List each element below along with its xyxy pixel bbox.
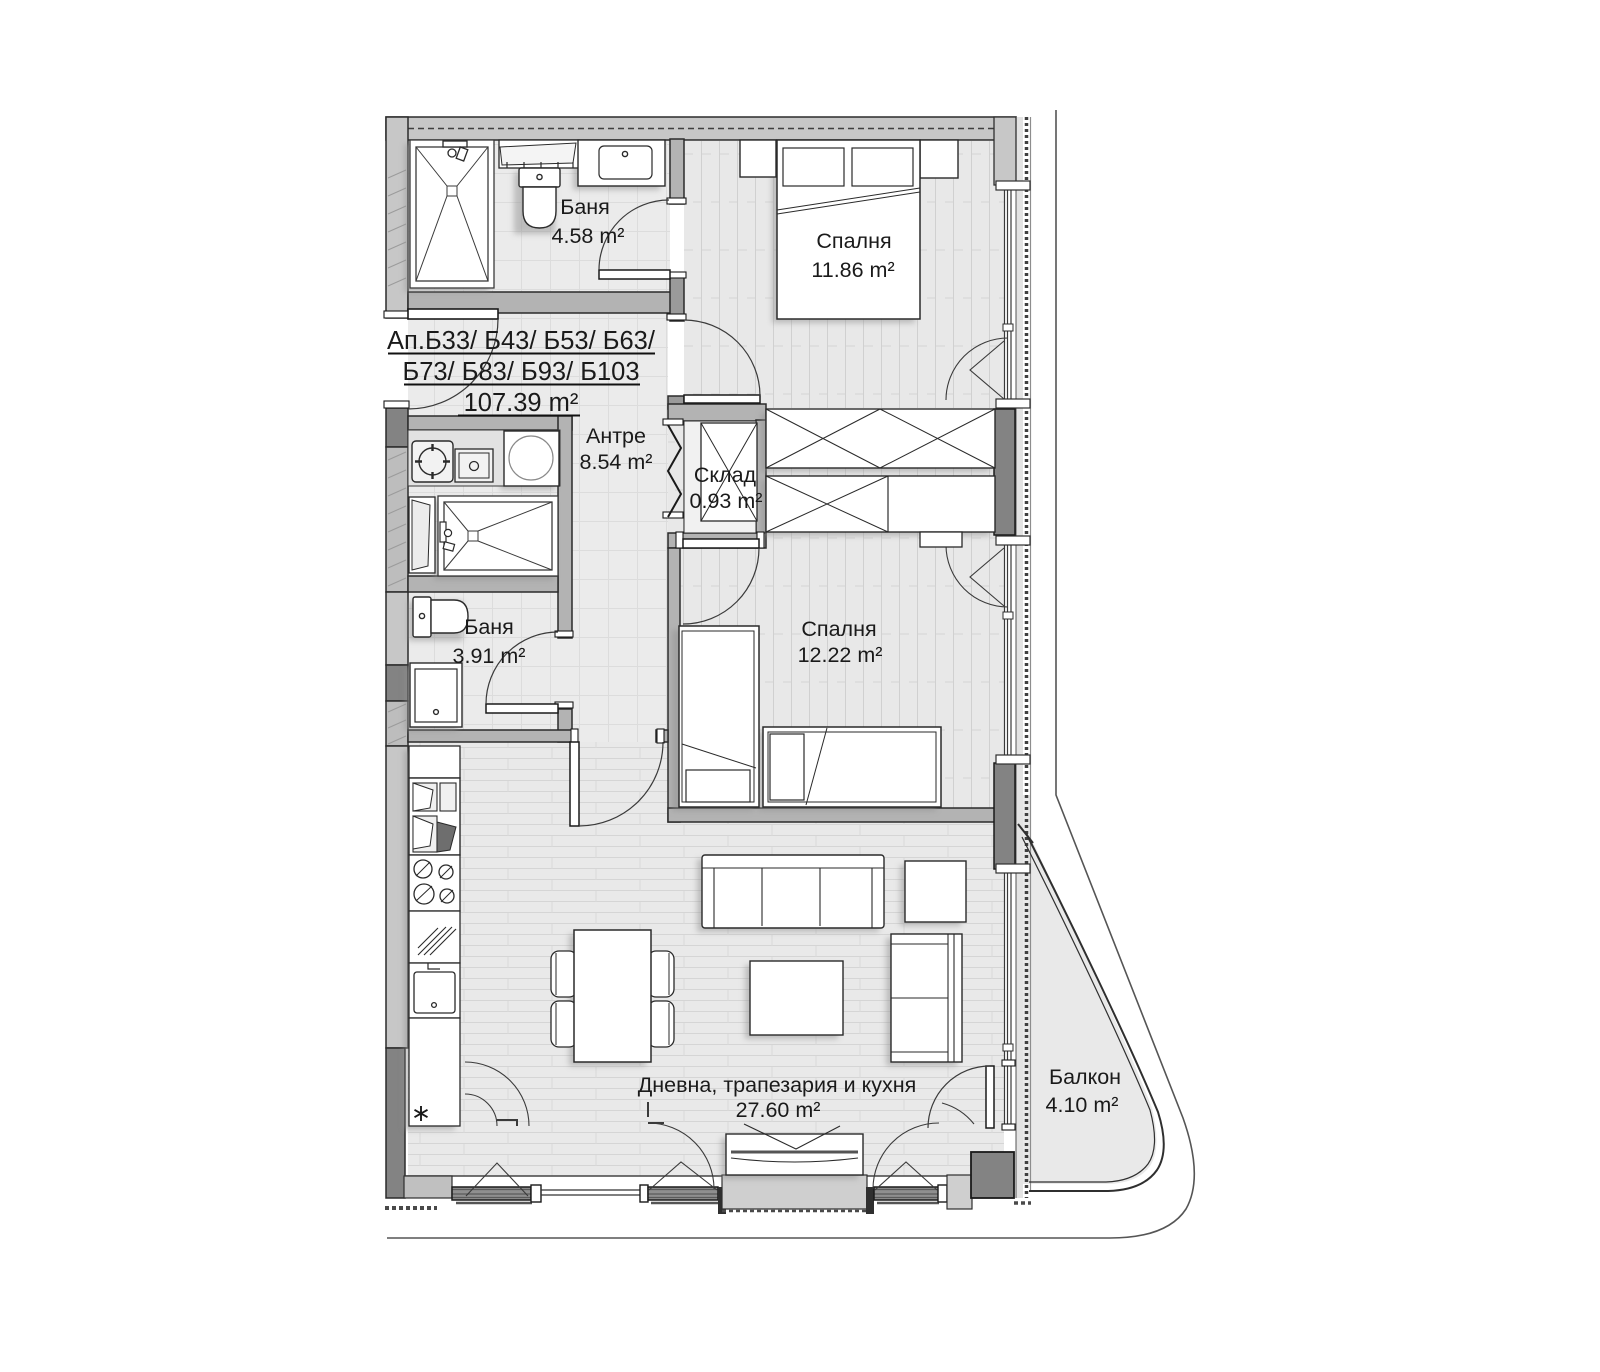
svg-text:4.58 m²: 4.58 m²	[552, 224, 625, 248]
svg-text:Балкон: Балкон	[1049, 1065, 1121, 1089]
svg-text:Спалня: Спалня	[816, 229, 891, 253]
svg-text:Баня: Баня	[464, 615, 514, 639]
svg-text:11.86 m²: 11.86 m²	[811, 258, 894, 282]
svg-text:Спалня: Спалня	[801, 617, 876, 641]
svg-text:Антре: Антре	[586, 424, 646, 448]
svg-text:0.93 m²: 0.93 m²	[690, 489, 763, 513]
svg-text:Б73/ Б83/ Б93/ Б103: Б73/ Б83/ Б93/ Б103	[402, 358, 639, 386]
svg-text:Склад: Склад	[694, 463, 757, 487]
svg-text:107.39 m²: 107.39 m²	[464, 389, 579, 417]
svg-text:12.22 m²: 12.22 m²	[798, 643, 883, 667]
svg-text:Дневна, трапезария и кухня: Дневна, трапезария и кухня	[638, 1073, 917, 1097]
svg-text:3.91 m²: 3.91 m²	[453, 644, 526, 668]
svg-text:27.60 m²: 27.60 m²	[736, 1098, 821, 1122]
svg-text:Ап.Б33/ Б43/ Б53/ Б63/: Ап.Б33/ Б43/ Б53/ Б63/	[387, 327, 656, 355]
svg-text:8.54 m²: 8.54 m²	[580, 450, 653, 474]
svg-text:4.10 m²: 4.10 m²	[1046, 1093, 1119, 1117]
svg-text:Баня: Баня	[560, 195, 610, 219]
